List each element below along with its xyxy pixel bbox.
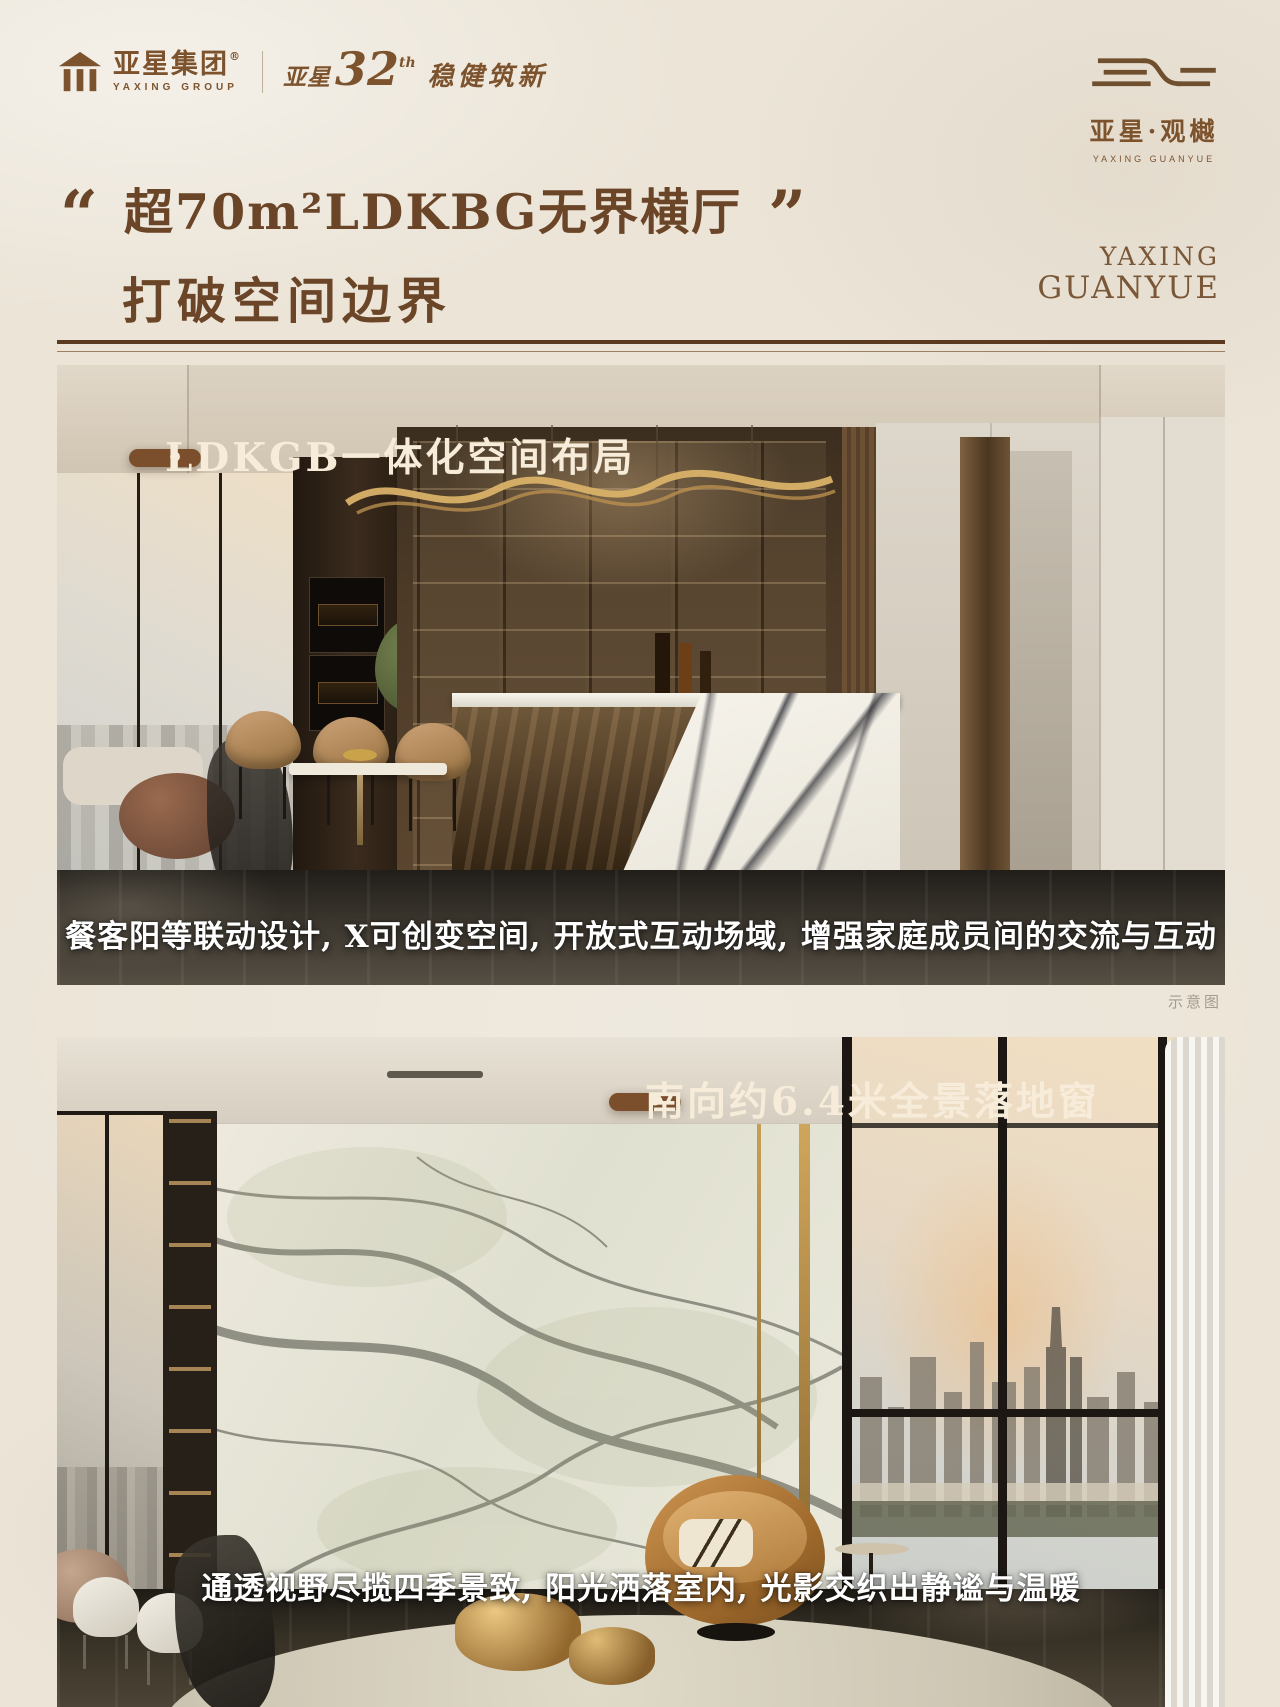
stool-leg (371, 773, 374, 825)
stool-leg (239, 767, 242, 819)
building-icon (57, 50, 103, 94)
living-room-photo: • 南向约6.4米全景落地窗 通透视野尽揽四季景致, 阳光洒落室内, 光影交织出… (57, 1037, 1225, 1707)
right-cabinet (1099, 417, 1225, 893)
logo-divider (262, 51, 263, 93)
open-quote-icon: “ (60, 182, 98, 248)
ceiling-vent (387, 1071, 483, 1078)
bottle (655, 633, 670, 693)
gold-coffee-table (569, 1627, 655, 1685)
table-pedestal (357, 775, 363, 845)
kitchen-photo: • LDKGB一体化空间布局 餐客阳等联动设计, X可创变空间, 开放式互动场域… (57, 365, 1225, 985)
brand-name-cn: 亚星·观樾 (1084, 112, 1224, 148)
throw-pillow (679, 1519, 753, 1567)
group-logo: 亚星集团® YAXING GROUP 亚星 32 th 稳健筑新 (57, 50, 548, 94)
oven-glass (318, 682, 378, 704)
fruit-bowl (343, 749, 377, 761)
anniversary-th: th (399, 55, 416, 71)
group-logo-en: YAXING GROUP (113, 83, 242, 93)
chair-leg (83, 1635, 86, 1669)
chair-leg (147, 1651, 150, 1685)
armchair-base (697, 1623, 775, 1641)
stool-leg (409, 779, 412, 831)
side-text-guanyue: GUANYUE (1037, 271, 1220, 305)
poster-canvas: 亚星集团® YAXING GROUP 亚星 32 th 稳健筑新 亚星·观樾 Y… (0, 0, 1280, 1707)
display-shelf (163, 1111, 217, 1593)
kitchen-badge-label: LDKGB一体化空间布局 (165, 435, 635, 482)
group-name-cn: 亚星集团 (113, 49, 229, 80)
close-quote-icon: ” (768, 182, 806, 248)
brand-logo: 亚星·观樾 YAXING GUANYUE (1084, 54, 1224, 164)
schematic-watermark: 示意图 (1168, 991, 1222, 1012)
window-badge: • 南向约6.4米全景落地窗 (609, 1093, 681, 1111)
stool-leg (283, 767, 286, 819)
anniversary-calligraphy: 亚星 32 th 稳健筑新 (283, 51, 548, 93)
bottle (700, 651, 711, 693)
anniversary-number: 32 (335, 51, 399, 88)
bottle (679, 643, 692, 693)
group-logo-text: 亚星集团® YAXING GROUP (113, 51, 242, 93)
registered-mark: ® (229, 50, 242, 63)
shelf-lights (169, 1119, 211, 1585)
window-badge-label: 南向约6.4米全景落地窗 (645, 1079, 1100, 1126)
oven-glass (318, 604, 378, 626)
oven (309, 577, 385, 653)
dining-table (289, 763, 447, 775)
divider-rule-thick (57, 340, 1225, 344)
stool-leg (327, 773, 330, 825)
headline-row: “ 超70m²LDKBG无界横厅 ” (60, 182, 806, 248)
anniversary-prefix: 亚星 (283, 58, 331, 92)
mountain-lines-icon (1088, 54, 1220, 100)
kitchen-caption: 餐客阳等联动设计, X可创变空间, 开放式互动场域, 增强家庭成员间的交流与互动 (57, 911, 1225, 956)
kitchen-badge: • LDKGB一体化空间布局 (129, 449, 201, 467)
stool-leg (453, 779, 456, 831)
headline-line1: 超70m²LDKBG无界横厅 (124, 182, 742, 243)
group-logo-cn: 亚星集团® (113, 51, 242, 78)
bar-stool (225, 711, 305, 807)
left-window (57, 1111, 167, 1601)
divider-rule-thin (57, 351, 1225, 352)
window-mullion (852, 1409, 1177, 1417)
side-text-yaxing: YAXING (1037, 243, 1220, 271)
corridor (1010, 451, 1072, 879)
bronze-pillar (960, 437, 1010, 883)
stool-back (225, 711, 301, 769)
chair-leg (125, 1635, 128, 1669)
headline-side-text: YAXING GUANYUE (1037, 243, 1220, 305)
cabinet-seam (1163, 417, 1165, 893)
swivel-armchair (645, 1475, 825, 1645)
window-caption: 通透视野尽揽四季景致, 阳光洒落室内, 光影交织出静谧与温暖 (57, 1563, 1225, 1608)
brand-name-en: YAXING GUANYUE (1084, 154, 1224, 164)
anniversary-slogan: 稳健筑新 (428, 56, 548, 93)
headline-line2: 打破空间边界 (122, 262, 452, 333)
window-mullion (105, 1115, 109, 1597)
